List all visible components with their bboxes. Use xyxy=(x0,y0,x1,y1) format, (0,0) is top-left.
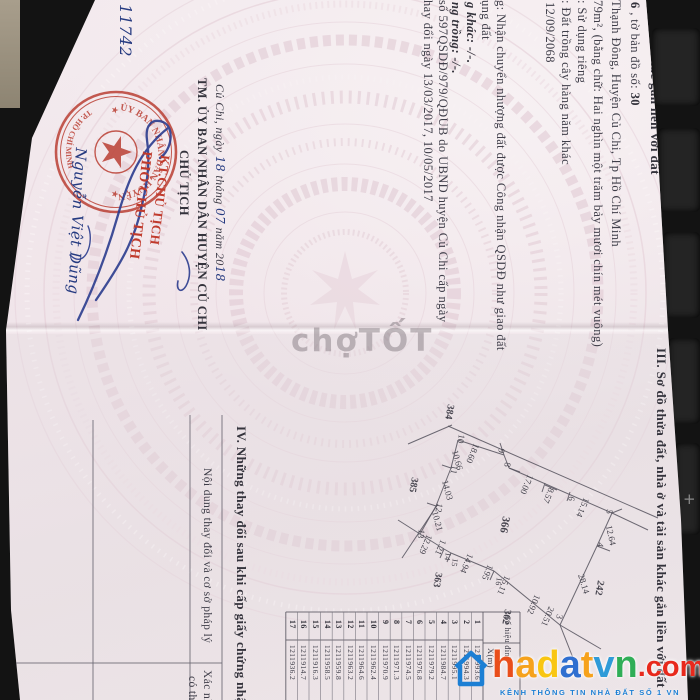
measurement-label: 11 xyxy=(449,465,460,475)
parcel-boundary-line xyxy=(447,553,451,562)
forest-line: ng trồng: -/-. xyxy=(450,2,463,74)
parcel-number-label: 366 xyxy=(497,515,512,534)
coord-x-value: 1211914.7 xyxy=(300,645,308,680)
parcel-boundary-line xyxy=(542,483,545,492)
logo-letters: hadatvn xyxy=(492,646,638,684)
parcel-boundary-line xyxy=(451,553,494,571)
coord-x-value: 1211959.8 xyxy=(335,645,343,680)
measurement-label: 28.14 xyxy=(576,573,592,596)
origin-line: g: Nhận chuyển nhượng đất được Công nhận… xyxy=(495,0,508,351)
measurement-label: 1.21 xyxy=(433,538,448,556)
coord-vertex-number: 15 xyxy=(311,620,319,629)
parcel-number-label: 363 xyxy=(430,571,443,588)
svg-text:★: ★ xyxy=(110,190,120,198)
section4-title: IV. Những thay đổi sau khi cấp giấy chứn… xyxy=(235,426,248,700)
measurement-label: 6 xyxy=(566,496,577,503)
logo-letter: v xyxy=(593,644,614,686)
parcel-number-label: 385 xyxy=(406,476,419,493)
coord-x-value: 1211979.2 xyxy=(428,645,436,680)
coord-x-value: 1211936.2 xyxy=(288,645,296,680)
coord-vertex-number: 4 xyxy=(439,620,447,624)
parcel-boundary-line xyxy=(509,468,520,472)
measurement-label: 4 xyxy=(595,542,606,549)
measurement-label: 16 xyxy=(494,577,504,586)
measurement-label: 20.51 xyxy=(539,605,556,628)
date-line: Củ Chi, ngày 18 tháng 07 năm 2018 xyxy=(214,84,226,282)
parcel-boundary-line xyxy=(440,549,444,558)
parcel-boundary-line xyxy=(402,504,438,558)
coord-vertex-number: 6 xyxy=(415,620,423,624)
coord-vertex-number: 7 xyxy=(404,620,412,624)
coord-x-value: 1211971.3 xyxy=(393,645,401,680)
desk-surface-strip xyxy=(0,0,20,108)
coord-vertex-number: 2 xyxy=(462,620,470,624)
measurement-label: 8.57 xyxy=(541,486,557,505)
logo-tagline: KÊNH THÔNG TIN NHÀ ĐẤT SỐ 1 VN xyxy=(500,688,680,697)
coord-x-value: 1211962.4 xyxy=(370,645,378,680)
coord-vertex-number: 16 xyxy=(299,620,307,629)
measurement-label: 13 xyxy=(415,529,426,540)
col2-header-2: có thẩm quyền xyxy=(186,676,198,700)
decision-line: số 597QSDĐ/979/QĐUB do UBND huyện Củ Chi… xyxy=(437,0,450,322)
coord-vertex-number: 1 xyxy=(473,620,481,624)
coord-x-value: 1211964.6 xyxy=(358,645,366,680)
parcel-boundary-line xyxy=(398,520,420,534)
measurement-label: 14 xyxy=(443,552,453,561)
measurement-label: 9 xyxy=(496,448,507,455)
parcel-boundary-line xyxy=(500,443,504,455)
coord-x-value: 1211984.7 xyxy=(439,645,447,680)
measurement-label: 10 xyxy=(455,434,466,445)
keyboard-key xyxy=(652,28,700,106)
parcel-boundary-line xyxy=(420,506,436,534)
parcel-boundary-line xyxy=(436,468,451,506)
measurement-label: 15.11 xyxy=(495,574,512,596)
logo-letter: t xyxy=(581,644,594,686)
measurement-label: 14.03 xyxy=(440,479,455,502)
measurement-label: 17.00 xyxy=(518,473,535,496)
measurement-label: 12 xyxy=(433,503,444,514)
measurement-label: 12.64 xyxy=(604,524,618,546)
parcel-boundary-line xyxy=(567,492,570,501)
col2-header-1: Xác nhận của cơ quan xyxy=(201,670,213,700)
corner-number: 11742 xyxy=(117,4,133,57)
logo-letter: n xyxy=(615,644,638,686)
measurement-label: 18.60 xyxy=(464,442,481,465)
measurement-label: 3 xyxy=(554,614,565,621)
measurement-label: 15 xyxy=(450,558,460,567)
measurement-label: 8 xyxy=(502,462,513,469)
logo-letter: a xyxy=(560,644,581,686)
parcel-boundary-line xyxy=(451,440,458,468)
coord-x-value: 1211916.3 xyxy=(312,645,320,680)
parcel-boundary-line xyxy=(408,425,452,444)
parcel-boundary-line xyxy=(612,513,648,530)
coord-vertex-number: 17 xyxy=(288,620,296,629)
hadatvn-logo: hadatvn .com.vn xyxy=(450,646,700,690)
coord-vertex-number: 3 xyxy=(450,620,458,624)
parcel-boundary-line xyxy=(490,571,494,580)
parcel-boundary-line xyxy=(597,513,612,546)
parcel-number-label: 242 xyxy=(592,579,605,596)
parcel-boundary-line xyxy=(427,503,436,506)
parcel-boundary-line xyxy=(442,465,451,468)
parcel-number-label: 384 xyxy=(442,403,455,420)
parcel-boundary-line xyxy=(597,546,610,551)
coord-vertex-number: 8 xyxy=(392,620,400,624)
logo-letter: d xyxy=(536,644,559,686)
photo-of-land-certificate: 18.609817.008.57615.14512.64428.14320.51… xyxy=(0,0,700,700)
keyboard-key xyxy=(663,232,700,318)
svg-text:★: ★ xyxy=(110,106,120,114)
measurement-label: 5 xyxy=(604,509,615,516)
measurement-label: 10.92 xyxy=(525,593,542,616)
coord-x-value: 1211958.5 xyxy=(323,645,331,680)
measurement-label: 10.66 xyxy=(450,449,465,472)
logo-letter: a xyxy=(515,644,536,686)
logo-letter: h xyxy=(492,644,515,686)
change-date-line: hay đổi ngày 13/03/2017, 10/05/2017 xyxy=(422,0,435,202)
parcel-boundary-line xyxy=(509,468,612,513)
coord-x-value: 1211963.2 xyxy=(346,645,354,680)
parcel-boundary-line xyxy=(545,485,557,490)
use-form-line: : Sử dụng riêng xyxy=(576,0,589,83)
plus-icon: + xyxy=(683,490,696,508)
coord-vertex-number: 14 xyxy=(323,620,331,629)
coord-vertex-number: 5 xyxy=(427,620,435,624)
section3-title: III. Sơ đồ thửa đất, nhà ở và tài sản kh… xyxy=(655,348,668,688)
parcel-boundary-line xyxy=(444,549,451,553)
chotot-watermark: chợTỐT xyxy=(291,323,433,359)
coord-x-value: 1211974.5 xyxy=(404,645,412,680)
origin-line-2: ụng đất xyxy=(480,0,493,40)
coord-x-value: 1211970.9 xyxy=(381,645,389,680)
coord-vertex-number: 9 xyxy=(381,620,389,624)
parcel-boundary-line xyxy=(458,440,504,455)
house-icon xyxy=(450,646,492,690)
measurement-label: 10.21 xyxy=(430,510,445,532)
parcel-boundary-line xyxy=(504,455,509,468)
col1-header: Nội dung thay đổi và cơ sở pháp lý xyxy=(201,468,213,643)
coord-vertex-number: 11 xyxy=(357,620,365,628)
term-line: 12/09/2068 xyxy=(544,2,557,63)
chairman-line: CHỦ TỊCH xyxy=(178,150,191,216)
logo-suffix: .com.vn xyxy=(638,653,700,682)
committee-line: TM. ỦY BAN NHÂN DÂN HUYỆN CỦ CHI xyxy=(196,78,209,331)
parcel-boundary-line xyxy=(560,546,597,625)
keyboard-key xyxy=(658,128,700,212)
coord-vertex-number: 12 xyxy=(346,620,354,629)
coord-vertex-number: 10 xyxy=(369,620,377,629)
parcel-map-line: 6 , tờ bản đồ số: 30 xyxy=(629,2,642,106)
parcel-boundary-line xyxy=(448,426,658,518)
other-works-line: g khác: -/-. xyxy=(465,2,478,63)
coord-x-value: 1211976.8 xyxy=(416,645,424,680)
measurement-label: 1.95 xyxy=(480,563,496,582)
use-purpose-line: : Đất trồng cây hàng năm khác xyxy=(560,0,573,165)
coord-vertex-number: 13 xyxy=(334,620,342,629)
measurement-label: 15.14 xyxy=(574,496,591,519)
area-line: 79m², (bằng chữ: Hai nghìn một trăm bảy … xyxy=(592,0,605,347)
signer-name: Nguyễn Việt Dũng xyxy=(65,147,88,295)
address-line: Thạnh Đông, Huyện Củ Chi, Tp Hồ Chí Minh xyxy=(610,0,623,247)
measurement-label: 12.29 xyxy=(417,533,434,556)
drum-star xyxy=(310,251,380,330)
parcel-boundary-line xyxy=(612,509,622,513)
parcel-boundary-line xyxy=(420,534,444,549)
measurement-label: 14.94 xyxy=(458,552,475,575)
